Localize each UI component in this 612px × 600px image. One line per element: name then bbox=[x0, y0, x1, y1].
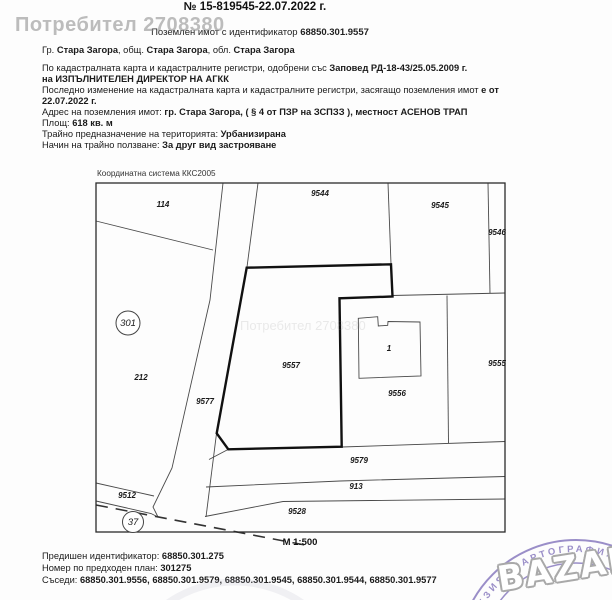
parcel-label-9546: 9546 bbox=[488, 228, 506, 237]
coordinate-system-label: Координатна система ККС2005 bbox=[97, 169, 216, 178]
cadastral-map: Координатна система ККС2005 114954495459… bbox=[0, 0, 612, 600]
boundary-9545-9546 bbox=[488, 183, 490, 293]
user-watermark: Потребител 2708380 bbox=[15, 14, 225, 37]
road-right-line-top bbox=[247, 183, 258, 267]
boundary-9556-9555 bbox=[447, 296, 449, 444]
parcel-number-labels: 1149544954595462129577955719556955595799… bbox=[118, 189, 506, 516]
map-scale-label: М 1:500 bbox=[283, 537, 318, 548]
parcel-label-9579: 9579 bbox=[350, 456, 368, 465]
boundary-114-212 bbox=[96, 221, 213, 250]
parcel-label-9577: 9577 bbox=[196, 397, 214, 406]
subject-parcel-outline bbox=[217, 264, 393, 449]
boundary-9545-9556 bbox=[392, 293, 505, 296]
parcel-label-114: 114 bbox=[157, 200, 170, 209]
cadastral-sketch-document: { "watermark": { "text": "Потребител 270… bbox=[0, 0, 612, 600]
parcel-label-212: 212 bbox=[133, 373, 148, 382]
map-frame bbox=[96, 183, 505, 532]
parcel-label-9512: 9512 bbox=[118, 491, 136, 500]
parcel-label-1: 1 bbox=[387, 344, 392, 353]
boundary-913-9528 bbox=[205, 499, 505, 517]
parcel-boundaries bbox=[96, 183, 505, 517]
parcel-label-9557: 9557 bbox=[282, 361, 300, 370]
parcel-label-9528: 9528 bbox=[288, 507, 306, 516]
footer-line-0: Предишен идентификатор: 68850.301.275 bbox=[42, 551, 224, 561]
footer-line-2: Съседи: 68850.301.9556, 68850.301.9579, … bbox=[42, 575, 437, 585]
parcel-label-9555: 9555 bbox=[488, 359, 506, 368]
boundary-9579-left bbox=[209, 450, 228, 460]
footer-line-1: Номер по предходен план: 301275 bbox=[42, 563, 191, 573]
survey-point-number-301: 301 bbox=[120, 318, 136, 329]
parcel-label-9545: 9545 bbox=[431, 201, 449, 210]
parcel-label-913: 913 bbox=[349, 482, 363, 491]
user-watermark-faint: Потребител 2708380 bbox=[240, 318, 366, 333]
boundary-9544-9545 bbox=[388, 183, 391, 264]
parcel-label-9544: 9544 bbox=[311, 189, 329, 198]
parcel-label-9556: 9556 bbox=[388, 389, 406, 398]
boundary-9556-9579 bbox=[342, 442, 505, 448]
road-right-line-bottom bbox=[206, 434, 217, 518]
survey-point-number-37: 37 bbox=[128, 517, 139, 528]
